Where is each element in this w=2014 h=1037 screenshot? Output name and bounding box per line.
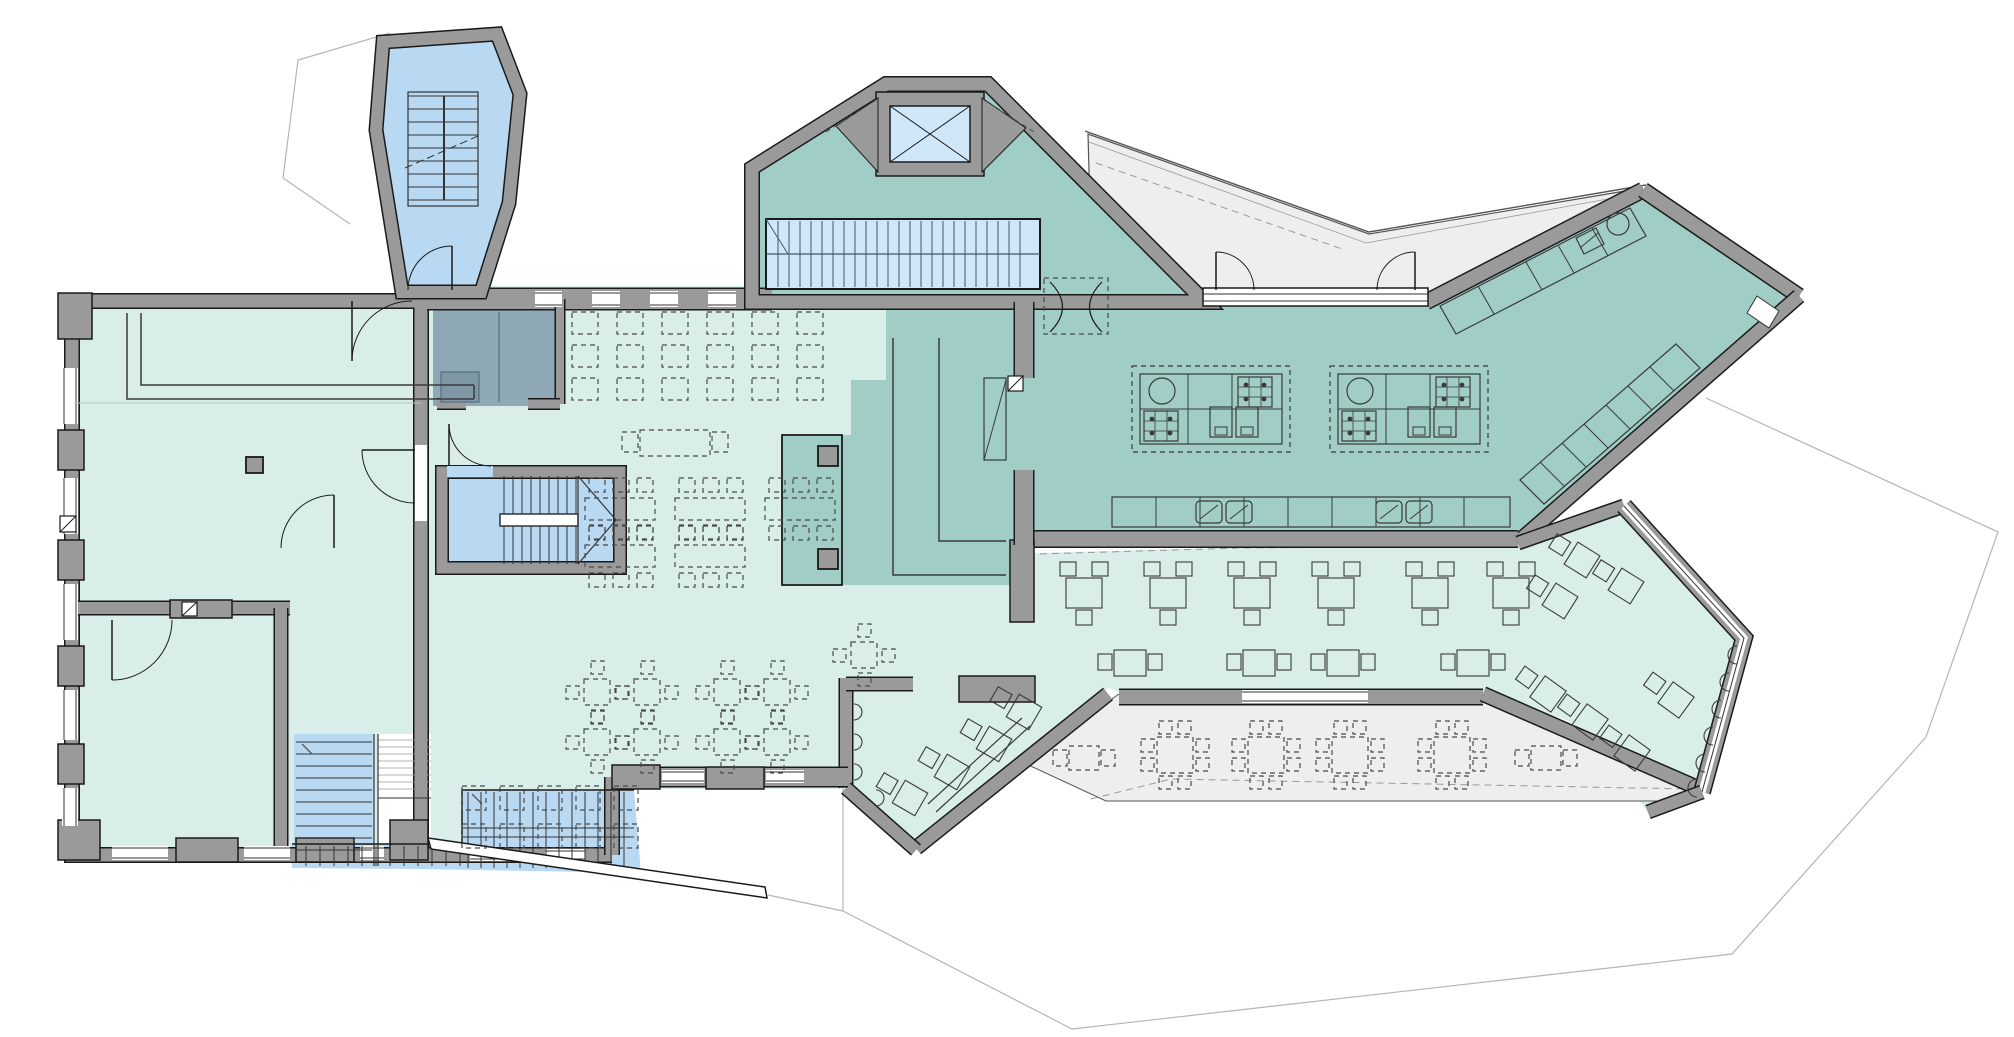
- site-boundary-ramp-link: [768, 895, 843, 911]
- floor-plan-svg: [0, 0, 2014, 1037]
- kitchen-island-1-burner: [1150, 431, 1155, 436]
- kitchen-island-2-burner: [1366, 431, 1371, 436]
- villa-east-door-gap: [415, 445, 427, 521]
- hall-south-pier-2: [706, 767, 764, 789]
- kitchen-island-2-burner: [1442, 383, 1447, 388]
- villa-corner-se: [390, 820, 428, 860]
- kitchen-island-1-burner: [1262, 383, 1267, 388]
- villa-corner-nw: [58, 293, 92, 339]
- kitchen-island-2-burner: [1460, 397, 1465, 402]
- kitchen-island-1-burner: [1244, 383, 1249, 388]
- kitchen-island-2-burner: [1460, 383, 1465, 388]
- central-stair-rail: [500, 514, 578, 526]
- villa-shaft-pier: [170, 600, 232, 618]
- kitchen-island-1-burner: [1168, 417, 1173, 422]
- kitchen-island-2-burner: [1348, 417, 1353, 422]
- villa-pier-left-1: [58, 430, 84, 470]
- floor-plan: [0, 0, 2014, 1037]
- villa-pier-bottom-1: [176, 838, 238, 862]
- kitchen-island-1-burner: [1168, 431, 1173, 436]
- central-stair-door-gap: [447, 466, 493, 477]
- kitchen-island-1-burner: [1244, 397, 1249, 402]
- kitchen-island-1-burner: [1262, 397, 1267, 402]
- courtyard-glazing: [1203, 288, 1428, 306]
- servery-column-2: [818, 549, 838, 569]
- site-outline-northwest-2: [283, 178, 350, 224]
- villa-pier-left-4: [58, 744, 84, 784]
- kitchen-island-2-burner: [1366, 417, 1371, 422]
- kitchen-island-2-burner: [1348, 431, 1353, 436]
- servery-column-1: [818, 446, 838, 466]
- hall-column: [246, 457, 263, 473]
- kitchen-island-1-burner: [1150, 417, 1155, 422]
- dining-northwest-wall: [1010, 540, 1034, 622]
- villa-pier-left-2: [58, 540, 84, 580]
- kitchen-island-2-burner: [1442, 397, 1447, 402]
- villa-pier-left-3: [58, 646, 84, 686]
